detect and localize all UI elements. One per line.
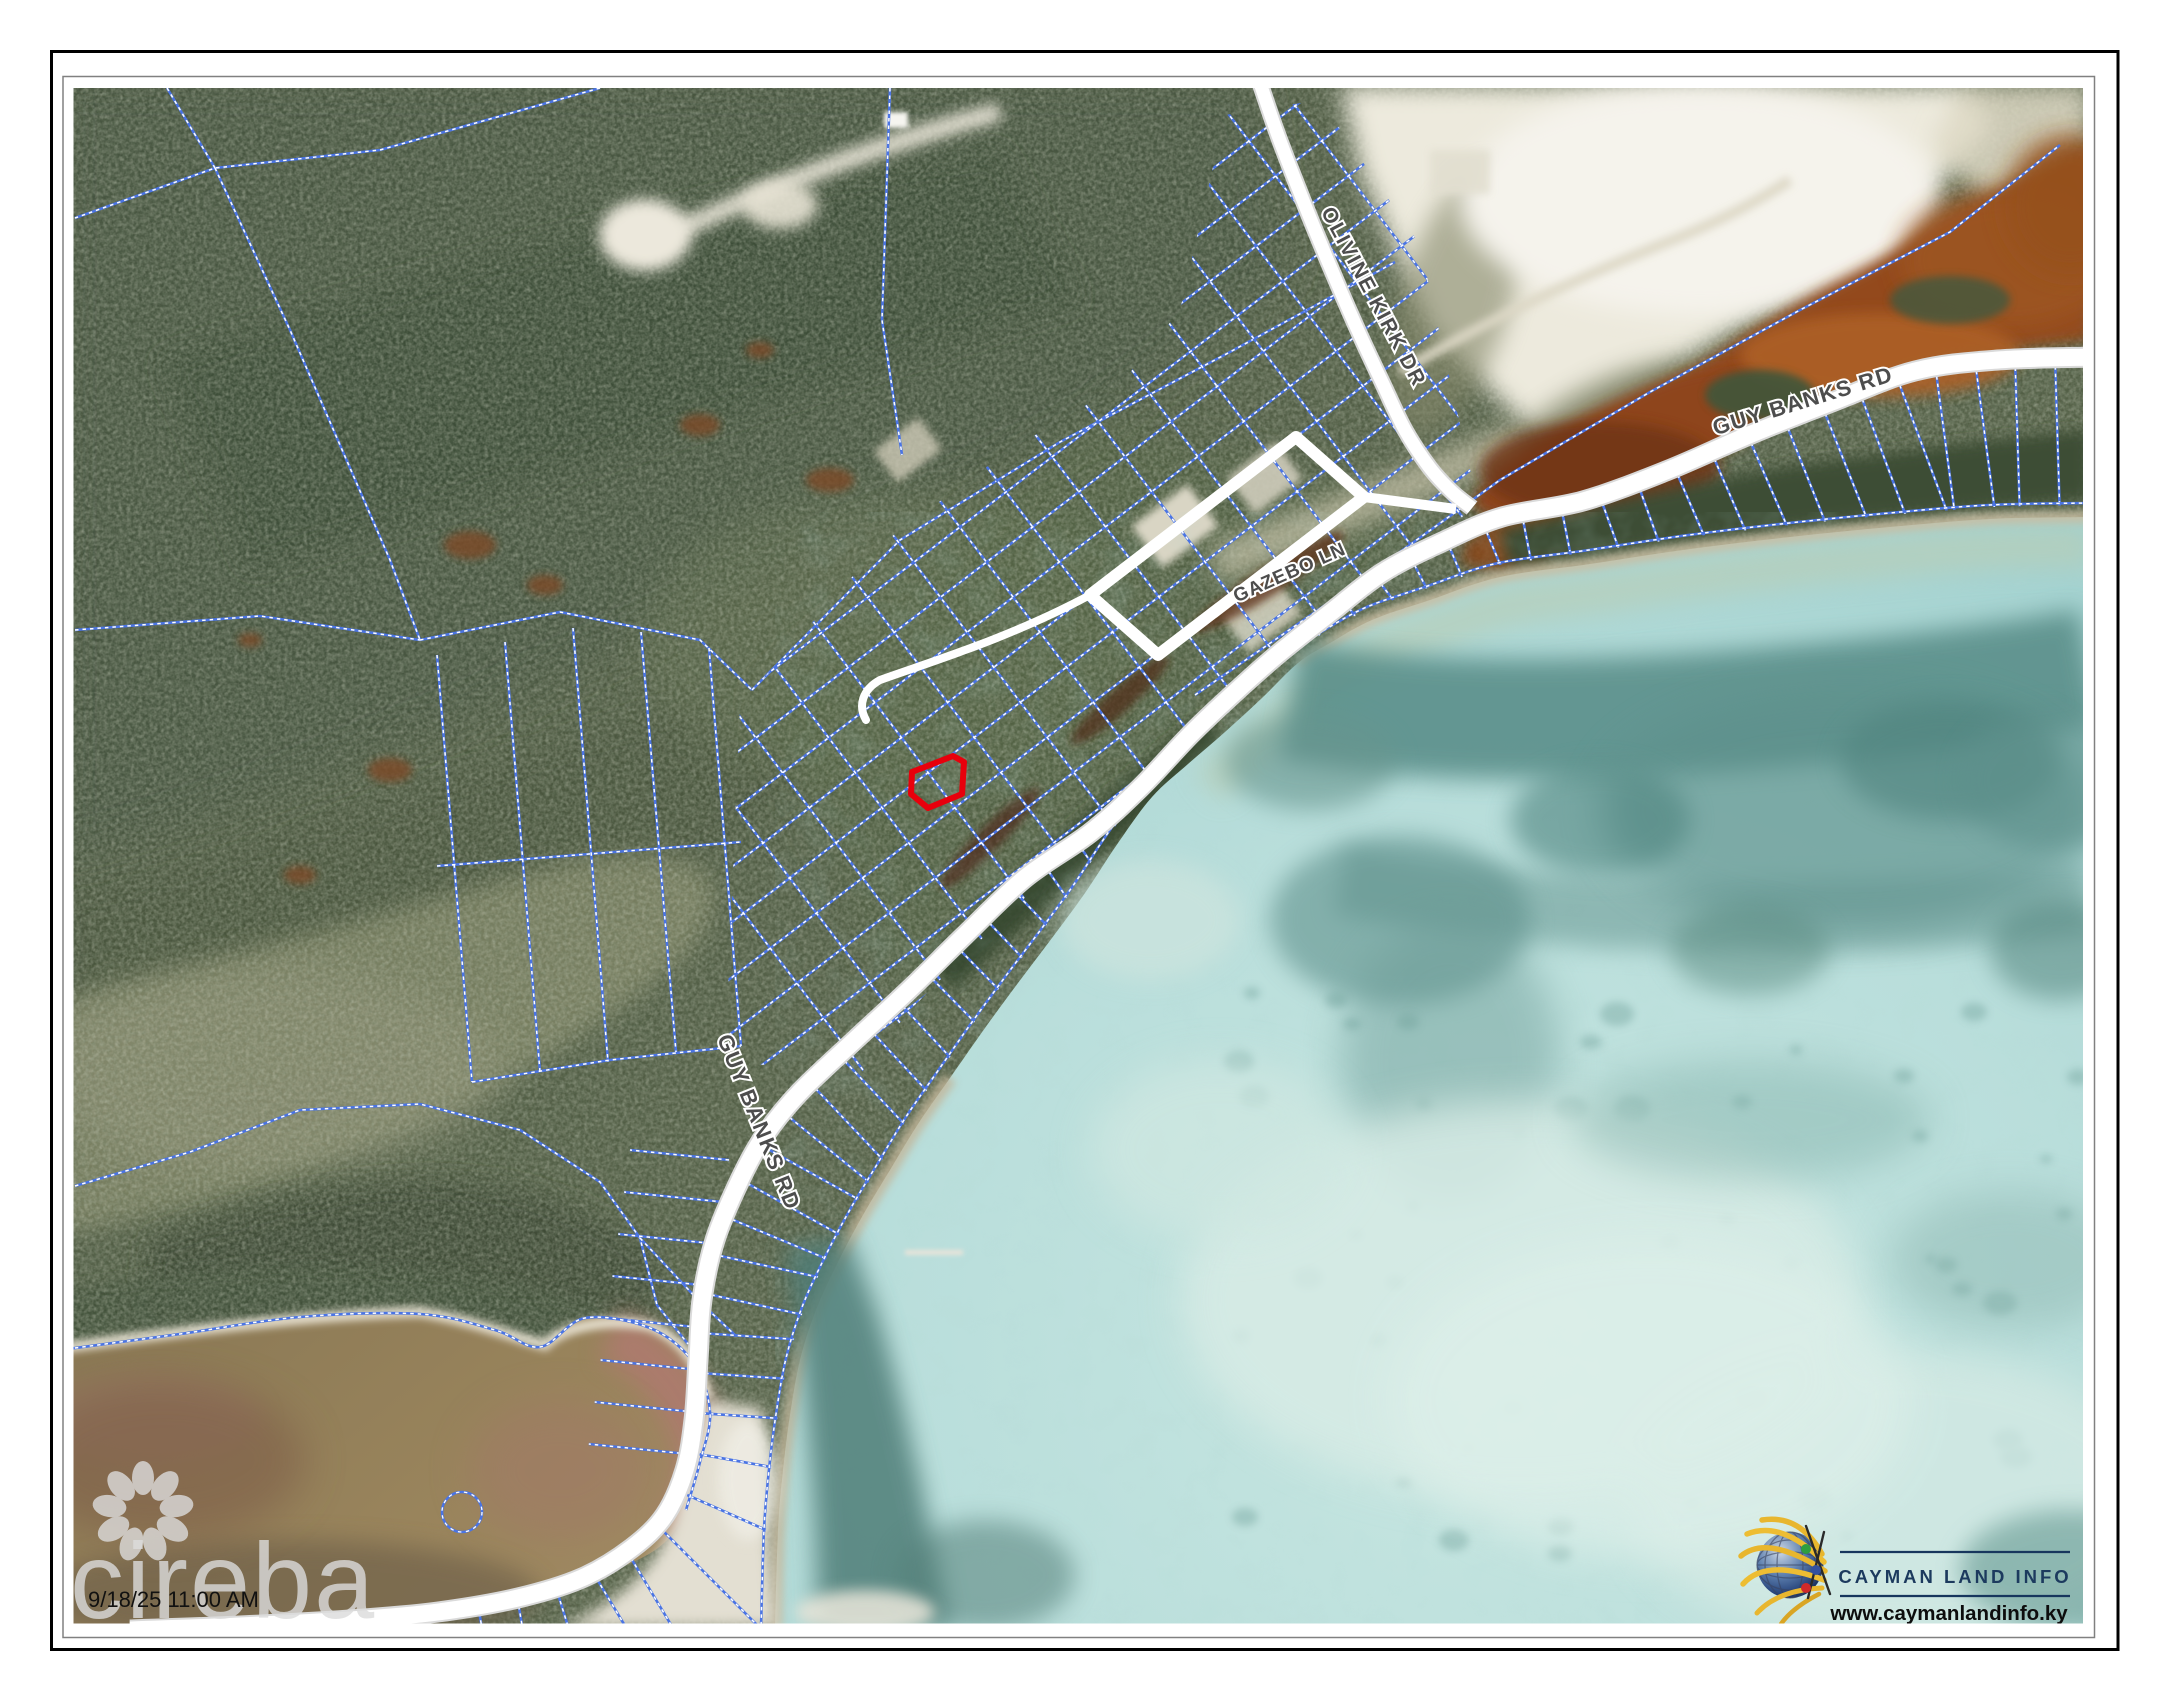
- svg-text:www.caymanlandinfo.ky: www.caymanlandinfo.ky: [1829, 1602, 2068, 1625]
- svg-text:9/18/25 11:00 AM: 9/18/25 11:00 AM: [88, 1587, 259, 1612]
- svg-text:CAYMAN LAND INFO: CAYMAN LAND INFO: [1838, 1566, 2071, 1587]
- svg-text:cireba: cireba: [70, 1520, 376, 1641]
